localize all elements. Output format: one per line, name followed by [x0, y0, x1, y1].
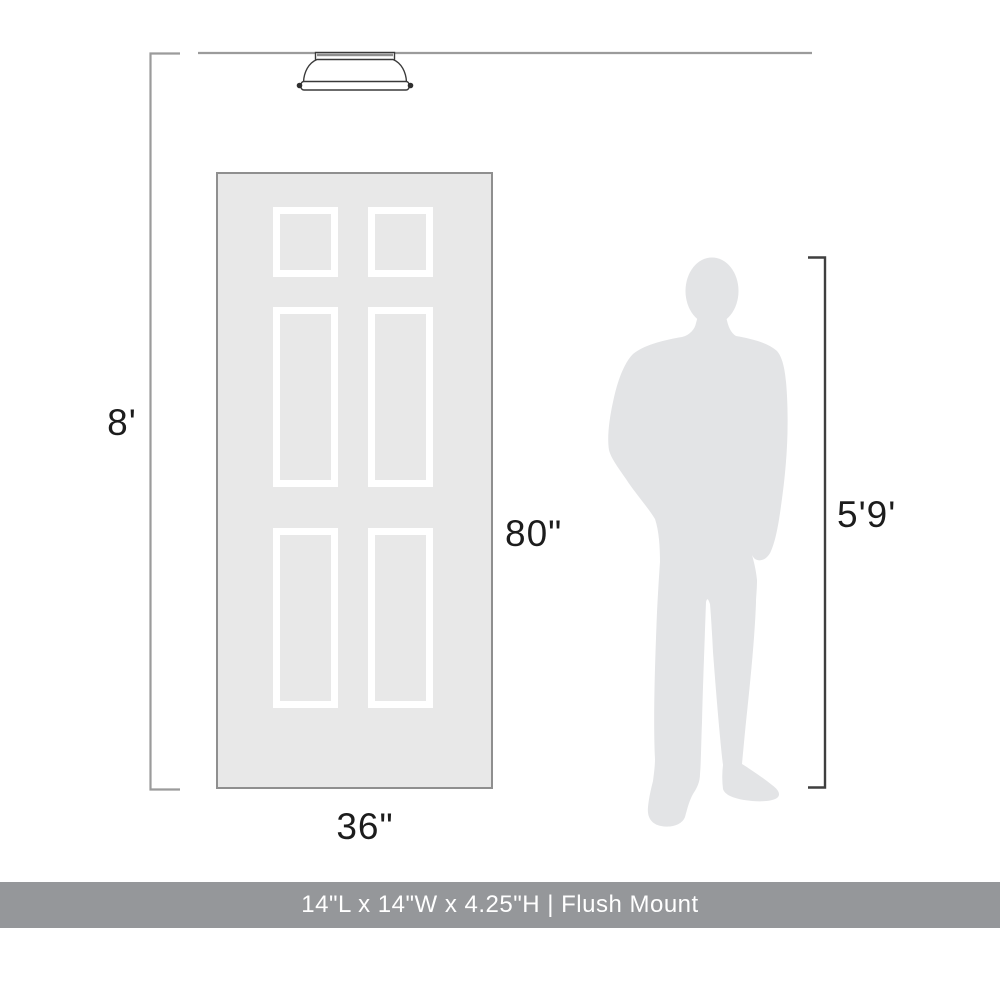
six-panel-door [216, 172, 493, 789]
fixture-dome [304, 60, 407, 83]
person-head [686, 258, 739, 325]
fixture-left-finial [297, 83, 303, 89]
flush-mount-light-icon [297, 53, 414, 91]
fixture-canopy-shadow [317, 54, 393, 57]
fixture-right-finial [408, 83, 414, 89]
door-height-label: 80" [505, 513, 562, 555]
ceiling-height-dimension-line [151, 54, 181, 790]
door-panel [273, 528, 338, 708]
door-width-label: 36" [325, 806, 405, 848]
person-height-dimension-line [808, 258, 825, 788]
product-dimensions-banner: 14"L x 14"W x 4.25"H | Flush Mount [0, 882, 1000, 928]
door-panel [273, 307, 338, 487]
size-comparison-diagram: 8' 80" 36" 5'9' 14"L x 14"W x 4.25"H | F… [0, 0, 1000, 1000]
fixture-rim [301, 82, 409, 91]
door-panel [368, 307, 433, 487]
door-panel [273, 207, 338, 277]
product-dimensions-text: 14"L x 14"W x 4.25"H | Flush Mount [301, 891, 698, 918]
ceiling-height-label: 8' [98, 402, 146, 444]
door-panel [368, 528, 433, 708]
person-height-label: 5'9' [837, 494, 896, 536]
door-panel [368, 207, 433, 277]
person-silhouette-icon [608, 258, 787, 827]
person-body [608, 316, 787, 827]
